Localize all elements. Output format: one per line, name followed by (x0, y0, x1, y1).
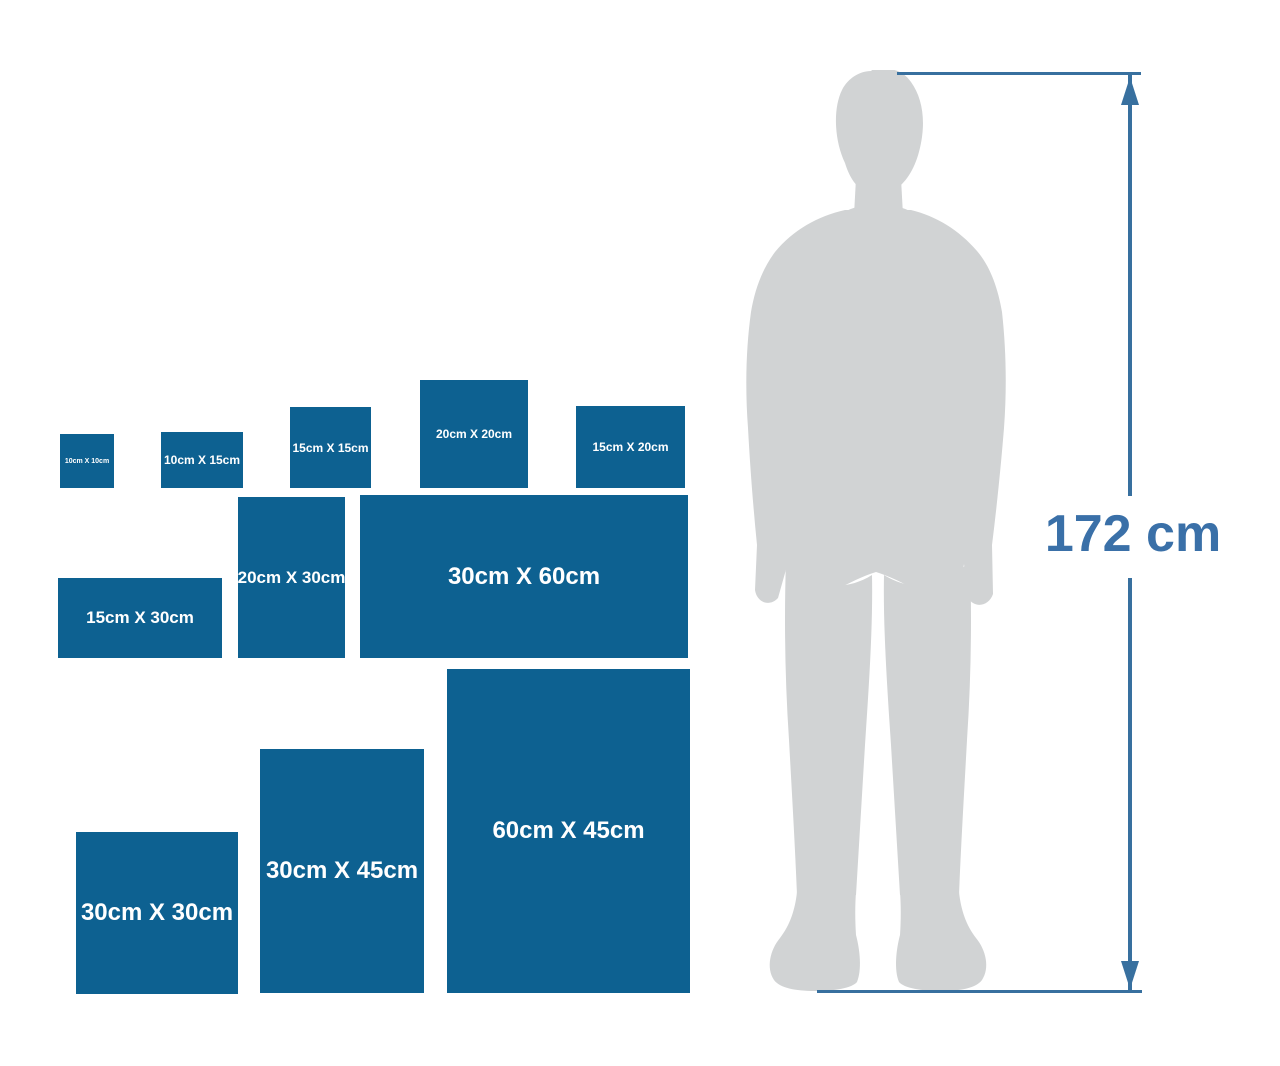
size-box-30x60: 30cm X 60cm (360, 495, 688, 658)
size-box-label: 30cm X 30cm (81, 899, 233, 927)
size-box-60x45: 60cm X 45cm (447, 669, 690, 993)
size-box-10x10: 10cm X 10cm (60, 434, 114, 488)
size-box-30x30: 30cm X 30cm (76, 832, 238, 994)
size-comparison-canvas: 10cm X 10cm10cm X 15cm15cm X 15cm20cm X … (0, 0, 1280, 1066)
dimension-arrowhead-up-icon (1121, 77, 1139, 105)
size-box-15x30: 15cm X 30cm (58, 578, 222, 658)
size-box-15x15: 15cm X 15cm (290, 407, 371, 488)
size-box-label: 10cm X 10cm (65, 458, 109, 465)
dimension-bottom-tick (817, 990, 1142, 993)
size-box-label: 15cm X 30cm (86, 608, 194, 628)
size-box-20x20: 20cm X 20cm (420, 380, 528, 488)
size-box-label: 30cm X 60cm (448, 563, 600, 591)
size-box-label: 15cm X 15cm (292, 441, 368, 455)
person-height-label: 172 cm (1024, 504, 1242, 564)
size-box-label: 60cm X 45cm (492, 817, 644, 845)
dimension-top-tick (897, 72, 1141, 75)
dimension-vertical-line-upper (1128, 75, 1132, 496)
size-box-label: 20cm X 30cm (238, 568, 346, 588)
man-silhouette (733, 70, 1023, 995)
size-box-30x45: 30cm X 45cm (260, 749, 424, 993)
size-box-label: 15cm X 20cm (592, 440, 668, 454)
size-box-10x15: 10cm X 15cm (161, 432, 243, 488)
dimension-arrowhead-down-icon (1121, 961, 1139, 989)
dimension-vertical-line-lower (1128, 578, 1132, 990)
size-box-15x20: 15cm X 20cm (576, 406, 685, 488)
size-box-label: 10cm X 15cm (164, 453, 240, 467)
size-box-label: 20cm X 20cm (436, 427, 512, 441)
size-box-20x30: 20cm X 30cm (238, 497, 345, 658)
size-box-label: 30cm X 45cm (266, 857, 418, 885)
